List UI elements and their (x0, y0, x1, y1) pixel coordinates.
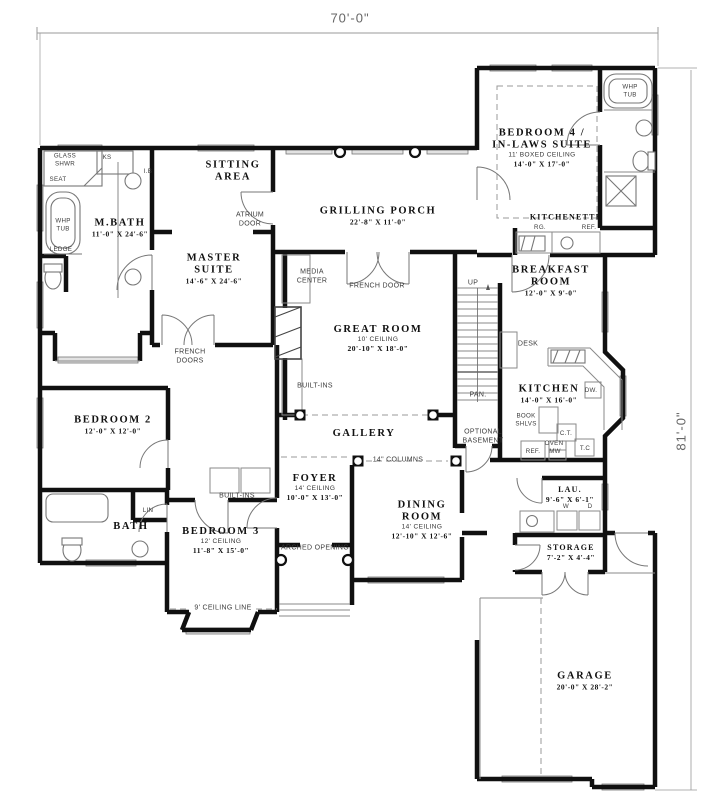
note-ib: I.B (144, 168, 152, 176)
room-label-foyer: FOYER 14' CEILING 10'-0" X 13'-0" (287, 473, 344, 503)
note-range: RG. (534, 224, 546, 232)
room-label-grilling-porch: GRILLING PORCH 22'-8" X 11'-0" (320, 205, 437, 226)
note-whp-tub-suite: WHP TUB (622, 83, 637, 99)
room-label-kitchen: KITCHEN 14'-0" X 16'-0" (519, 383, 580, 404)
room-label-kitchenette: KITCHENETTE (530, 214, 602, 223)
note-french-door: FRENCH DOOR (349, 283, 404, 292)
note-media-center: MEDIA CENTER (297, 268, 328, 286)
note-dishwasher: DW. (585, 387, 598, 395)
note-arched-opening: ARCHED OPENING (281, 545, 349, 554)
note-desk: DESK (518, 341, 538, 350)
note-microwave: MW (549, 448, 561, 456)
note-columns: 14" COLUMNS (373, 457, 424, 466)
room-label-m-bath: M.BATH 11'-0" X 24'-6" (92, 217, 148, 238)
note-up: UP (468, 280, 478, 289)
room-label-garage: GARAGE 20'-0" X 28'-2" (557, 670, 614, 691)
note-ledge: LEDGE (50, 246, 72, 254)
note-built-ins-hall: BUILT-INS (219, 493, 255, 502)
note-ks: KS (103, 154, 112, 162)
note-oven: OVEN (545, 440, 564, 448)
floor-plan: 70'-0" 81'-0" SITTING AREA M.BATH 11'-0"… (0, 0, 725, 805)
note-ct: C.T. (560, 430, 572, 438)
note-ceiling-line: 9' CEILING LINE (194, 605, 251, 614)
room-label-storage: STORAGE 7'-2" X 4'-4" (547, 544, 595, 562)
note-seat: SEAT (50, 176, 67, 184)
room-label-gallery: GALLERY (333, 428, 396, 440)
note-atrium-door: ATRIUM DOOR (236, 211, 264, 229)
note-french-doors: FRENCH DOORS (175, 348, 206, 366)
note-pantry: PAN. (469, 392, 486, 401)
room-label-breakfast-room: BREAKFAST ROOM 12'-0" X 9'-0" (512, 265, 590, 298)
room-label-great-room: GREAT ROOM 10' CEILING 20'-10" X 18'-0" (334, 324, 423, 354)
room-label-dining-room: DINING ROOM 14' CEILING 12'-10" X 12'-6" (392, 499, 453, 540)
staircase (457, 284, 498, 402)
room-label-laundry: LAU. 9'-6" X 6'-1" (546, 486, 594, 504)
note-optional-basement: OPTIONAL BASEMENT (463, 428, 504, 446)
room-label-bedroom2: BEDROOM 2 12'-0" X 12'-0" (74, 414, 152, 435)
note-tc: T.C (580, 445, 590, 453)
note-linen: LIN (143, 507, 154, 515)
dimension-height: 81'-0" (674, 411, 689, 450)
note-dryer: D (588, 503, 593, 511)
note-washer: W (563, 503, 569, 511)
room-label-sitting-area: SITTING AREA (206, 159, 261, 183)
note-built-ins-great-room: BUILT-INS (297, 383, 333, 392)
note-ref-kitchen: REF. (526, 448, 541, 456)
dimension-width: 70'-0" (330, 11, 369, 26)
room-label-bedroom4: BEDROOM 4 / IN-LAWS SUITE 11' BOXED CEIL… (492, 127, 592, 168)
note-whp-tub-master: WHP TUB (55, 217, 70, 233)
room-label-master-suite: MASTER SUITE 14'-6" X 24'-6" (186, 253, 243, 286)
note-book-shelves: BOOK SHLVS (515, 412, 536, 428)
note-ref-kitchenette: REF. (582, 224, 597, 232)
room-label-bath: BATH (113, 521, 148, 533)
room-label-bedroom3: BEDROOM 3 12' CEILING 11'-8" X 15'-0" (182, 526, 260, 556)
note-glass-shower: GLASS SHWR (54, 152, 76, 168)
floorplan-linework (0, 0, 725, 805)
